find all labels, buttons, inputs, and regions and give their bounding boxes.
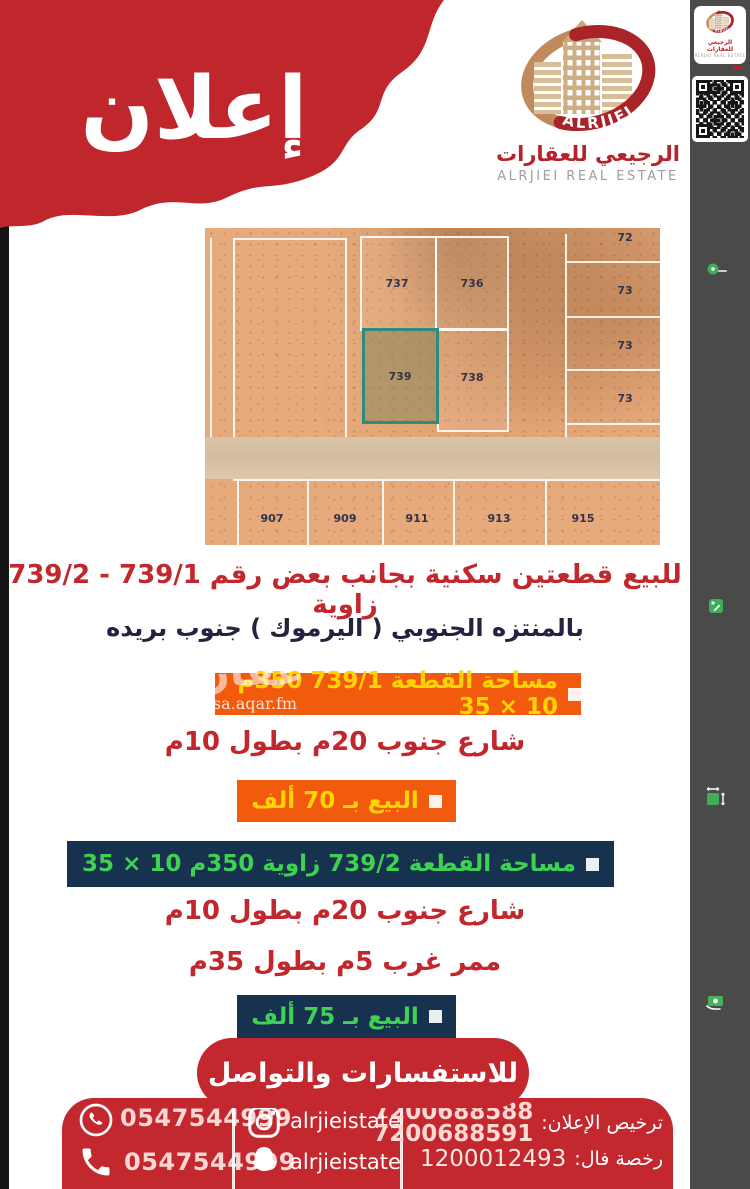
plot-boundary-line [233,238,235,437]
location-pin-icon [706,262,728,279]
plot-number-915: 915 [563,512,603,525]
plot-number-right: 73 [605,284,645,297]
license-block: ترخيص الإعلان: 7200688588 7200688591 رخص… [410,1101,663,1172]
tag-icon [708,598,724,614]
announcement-title: إعلان [38,62,350,157]
plot-boundary-line [307,479,309,545]
plot-map: 737 736 739 738 72 73 73 73 907 909 911 … [205,228,660,545]
plot-boundary-line [237,479,239,545]
fal-license-number: 1200012493 [420,1146,566,1172]
bullet-square-icon [429,1010,442,1023]
plot-number-911: 911 [397,512,437,525]
bullet-square-icon [429,795,442,808]
snapchat-handle: alrjieistate [290,1150,401,1174]
plot-boundary-line [345,238,347,437]
listing-title-line1: للبيع قطعتين سكنية بجانب بعض رقم 739/1 -… [8,560,682,620]
snapchat-icon [246,1144,282,1180]
plot-number-right: 73 [605,339,645,352]
plot-number-right: 72 [605,231,645,244]
qr-finder-icon [730,80,744,94]
plot2-area-text: مساحة القطعة 739/2 زاوية 350م 10 × 35 [82,851,576,877]
side-logo-tile: الرجيعي للعقارات ALRJIEI REAL ESTATE [694,6,746,64]
contact-banner: للاستفسارات والتواصل [197,1038,529,1108]
license-label: ترخيص الإعلان: [541,1112,663,1134]
plot-boundary-line [565,261,660,263]
plot2-area-band: مساحة القطعة 739/2 زاوية 350م 10 × 35 [67,841,614,887]
dimensions-icon [706,786,726,806]
listing-title-line2: بالمنتزه الجنوبي ( اليرموك ) جنوب بريده [8,614,682,642]
brand-name-arabic: الرجيعي للعقارات [468,142,708,166]
license-number-2: 7200688591 [373,1123,533,1145]
qr-finder-icon [696,124,710,138]
brand-logo-mini [697,8,743,36]
plot-number-737: 737 [377,277,417,290]
plot-boundary-line [565,316,660,318]
plot-boundary-line [565,369,660,371]
fal-license-row: رخصة فال: 1200012493 [410,1146,663,1172]
qr-modules [696,80,744,138]
plot-boundary-line [565,234,567,437]
contact-divider [232,1105,235,1189]
brand-name-english-mini: ALRJIEI REAL ESTATE [694,53,746,58]
plot-boundary-line [565,423,660,425]
plot1-price-text: البيع بـ 70 ألف [251,788,418,814]
whatsapp-icon [78,1102,114,1138]
plot-number-739: 739 [380,370,420,383]
plot-number-913: 913 [479,512,519,525]
contact-bar: 0547544999 0547544999 alrjieistate alrji… [62,1098,673,1189]
plot-boundary-line [453,479,455,545]
plot-boundary-line [233,479,660,481]
brand-name-english: ALRJIEI REAL ESTATE [468,169,708,184]
bullet-square-icon [568,688,581,701]
brand-logo: الرجيعي للعقارات ALRJIEI REAL ESTATE [468,18,708,184]
qr-code [692,76,748,142]
plot2-price-band: البيع بـ 75 ألف [237,995,456,1038]
qr-finder-icon [696,80,710,94]
plot-number-909: 909 [325,512,365,525]
plot-boundary-line [382,479,384,545]
plot-number-738: 738 [452,371,492,384]
money-icon [705,994,725,1012]
plot2-passage-line: ممر غرب 5م بطول 35م [8,947,682,977]
bullet-square-icon [586,858,599,871]
plot1-area-text: مساحة القطعة 739/1 350م 10 × 35 [215,668,558,720]
plot1-street-line: شارع جنوب 20م بطول 10م [8,727,682,757]
plot1-area-band: مساحة القطعة 739/1 350م 10 × 35 [215,673,581,715]
plot1-price-band: البيع بـ 70 ألف [237,780,456,822]
fal-license-label: رخصة فال: [574,1148,663,1170]
announcement-blob: إعلان [0,0,446,240]
plot2-street-line: شارع جنوب 20م بطول 10م [8,896,682,926]
phone-icon [78,1144,114,1180]
plot-boundary-line [545,479,547,545]
plot2-price-text: البيع بـ 75 ألف [251,1004,418,1030]
tile-accent-mark [733,66,742,69]
real-estate-poster: إعلان الرجيعي للعقارات ALRJIEI REAL ESTA… [0,0,750,1189]
instagram-icon [246,1104,282,1140]
plot-boundary-line [210,238,212,437]
plot-number-736: 736 [452,277,492,290]
brand-logo-mark [476,18,700,140]
plot-number-907: 907 [252,512,292,525]
plot-number-right: 73 [605,392,645,405]
brand-name-arabic-mini: الرجيعي للعقارات [694,40,746,53]
map-road [205,437,660,479]
side-panel: الرجيعي للعقارات ALRJIEI REAL ESTATE بري… [690,0,750,1189]
